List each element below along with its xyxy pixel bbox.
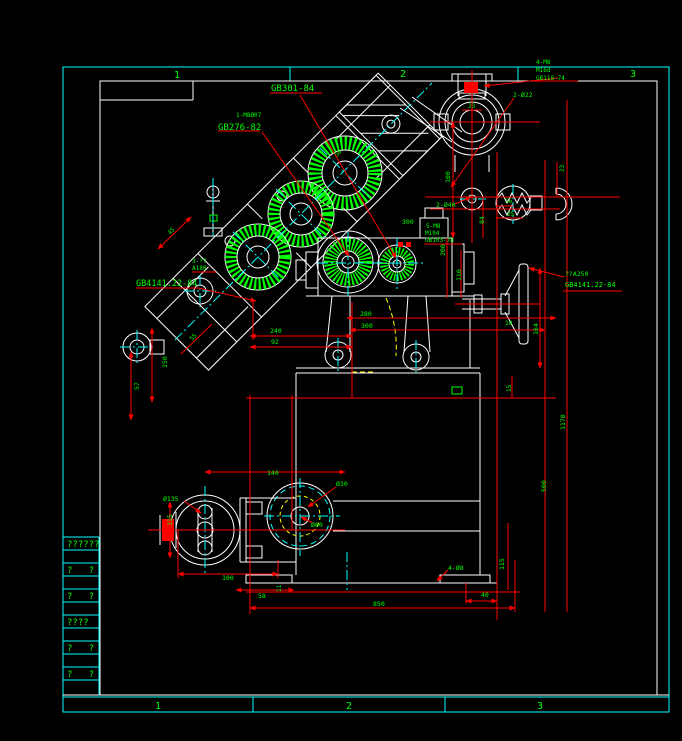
cad-label: GB276-82 [218, 123, 261, 133]
cad-label: 55 [188, 332, 198, 342]
cad-label: 4-M8 [536, 59, 551, 66]
cad-label: 58 [258, 592, 266, 600]
cad-label: 10 [505, 320, 513, 327]
cad-label: GB103-78 [425, 237, 454, 244]
detent-mechanism [461, 186, 572, 220]
cad-label: GB118-74 [536, 75, 565, 82]
cad-label: 115 [166, 514, 174, 526]
cad-label: 45 [166, 226, 176, 236]
cad-label: 115 [498, 558, 506, 570]
cad-label: GB4141.22-84 [565, 281, 616, 289]
cad-label: 164 [532, 323, 540, 335]
cad-label: 2-Ø40 [436, 201, 456, 209]
cad-label: Ø60 [311, 521, 323, 529]
cad-label: 200 [439, 244, 447, 256]
cad-viewport: 123123 ??????? ?? ?????? ?? ? GB301-841-… [0, 0, 682, 741]
cad-label: 280 [360, 310, 372, 318]
inner-frame [63, 81, 669, 695]
cad-label: GB4141.22-84 [136, 279, 197, 289]
title-block-row: ? ? [67, 644, 94, 654]
cad-label: 850 [373, 600, 385, 608]
cad-label: 240 [270, 327, 282, 335]
cad-label: 300 [402, 218, 414, 226]
cad-label: 25 [507, 211, 515, 218]
cad-label: 92 [271, 338, 279, 346]
cad-label: 3-?? [192, 258, 207, 265]
cad-drawing-canvas: 123123 ??????? ?? ?????? ?? ? GB301-841-… [0, 0, 682, 741]
cad-label: GB301-84 [271, 84, 314, 94]
cad-label: 23 [559, 164, 566, 172]
cad-label: Ø30 [336, 480, 348, 488]
cad-label: 140 [267, 469, 279, 477]
cad-label: 300 [361, 322, 373, 330]
cad-label: 11 [276, 584, 283, 592]
cad-label: 1-M8Ø07 [236, 112, 262, 119]
zone-number-top: 1 [174, 70, 180, 81]
cad-label: 150 [161, 356, 169, 368]
cad-label: M104 [425, 230, 440, 237]
cad-label: 100 [444, 171, 452, 183]
cad-label: ??A250 [565, 270, 589, 278]
machine-base [246, 373, 497, 583]
title-block-text: ??????? ?? ?????? ?? ? [67, 540, 100, 680]
zone-number-top: 2 [400, 69, 406, 80]
cad-label: 15 [506, 384, 513, 392]
cad-label: 110 [455, 269, 463, 281]
cad-label: M16d [536, 67, 551, 74]
zone-number-bottom: 2 [346, 701, 352, 712]
cad-label: 84 [478, 216, 486, 224]
cad-label: 500 [540, 480, 548, 492]
title-block-row: ? ? [67, 592, 94, 602]
cad-label: 16 [505, 198, 513, 205]
cad-label: Ø135 [163, 495, 179, 503]
zone-number-top: 3 [630, 69, 636, 80]
zone-number-bottom: 1 [155, 701, 161, 712]
cad-label: 5-M8 [426, 223, 441, 230]
aux-yellow [352, 298, 396, 372]
cad-label: 4-Ø8 [448, 564, 464, 572]
title-block-row: ???? [67, 618, 89, 628]
title-block-row: ? ? [67, 566, 94, 576]
cad-label: 1170 [559, 414, 567, 430]
cad-label: 100 [222, 574, 234, 582]
cad-label: 23 [468, 103, 476, 110]
cad-label: 40 [481, 591, 489, 599]
cad-label: A180 [192, 265, 207, 272]
zone-number-bottom: 3 [537, 701, 543, 712]
title-block-row: ? ? [67, 670, 94, 680]
cad-label: 57 [133, 382, 141, 390]
title-block-row: ?????? [67, 540, 100, 550]
cad-label: 2-Ø22 [513, 91, 533, 99]
